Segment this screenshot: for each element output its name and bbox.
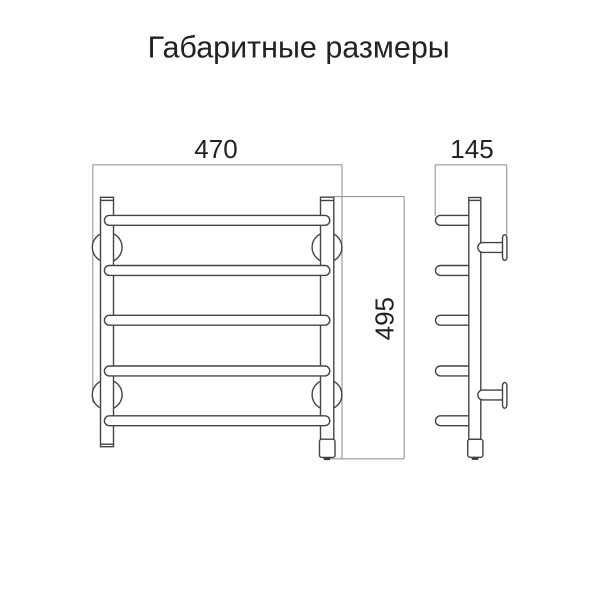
svg-text:145: 145 [450, 134, 493, 164]
svg-text:495: 495 [369, 297, 399, 340]
svg-text:Габаритные размеры: Габаритные размеры [148, 30, 450, 64]
svg-text:470: 470 [194, 134, 237, 164]
